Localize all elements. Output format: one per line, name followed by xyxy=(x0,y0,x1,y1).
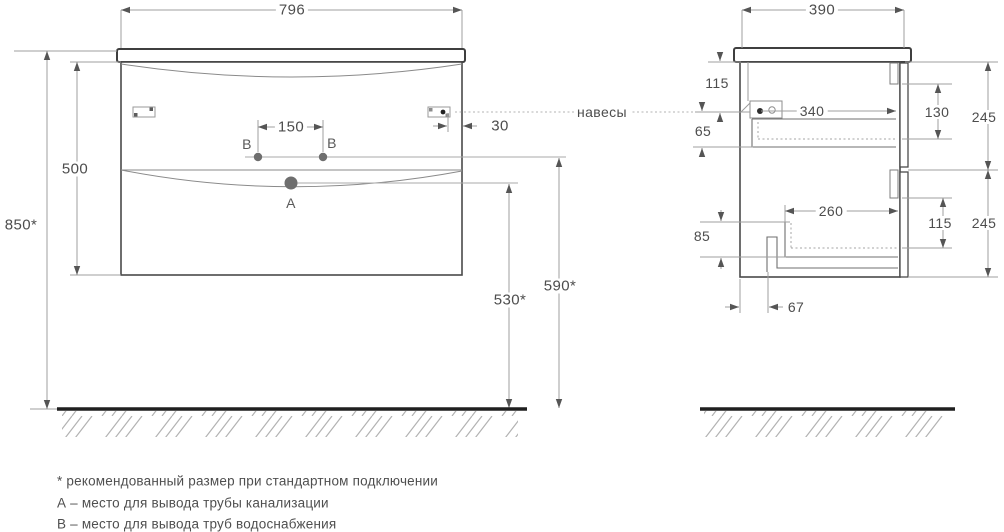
water-height-dim: 590* xyxy=(541,279,579,294)
drain-point-a xyxy=(285,177,298,190)
legend-note-point-b: В – место для вывода труб водоснабжения xyxy=(57,517,336,532)
side-top-recess-dim: 130 xyxy=(922,105,953,119)
side-hanger-top-dim: 115 xyxy=(702,76,732,90)
point-b-left-label: B xyxy=(241,137,253,151)
hanger-offset-dim: 30 xyxy=(488,119,512,134)
side-hanger-front-dim: 340 xyxy=(797,104,828,118)
front-right-hanger xyxy=(428,107,450,117)
front-height-dim: 500 xyxy=(59,162,91,177)
hangers-label: навесы xyxy=(574,105,630,119)
floor-side xyxy=(700,409,955,437)
floor-front xyxy=(57,409,527,437)
front-left-hanger xyxy=(133,107,155,117)
mount-height-dim: 850* xyxy=(2,218,40,233)
drain-height-dim: 530* xyxy=(491,293,529,308)
point-b-right-label: B xyxy=(326,136,338,150)
front-width-dim: 796 xyxy=(276,3,308,18)
side-basin-clearance-dim: 65 xyxy=(692,124,714,138)
front-view-drawing xyxy=(117,49,566,275)
point-a-label: A xyxy=(285,196,297,210)
technical-drawing: 796 500 850* 150 30 530* 590* B B A наве… xyxy=(0,0,1004,532)
side-drawer-inner-dim: 260 xyxy=(816,204,847,218)
water-point-b-right xyxy=(319,153,327,161)
holes-spacing-dim: 150 xyxy=(275,120,307,135)
drawing-canvas xyxy=(0,0,1004,532)
water-point-b-left xyxy=(254,153,262,161)
side-top-section-dim: 245 xyxy=(969,110,1000,124)
side-bottom-recess-dim: 115 xyxy=(925,216,955,230)
legend-note-recommended: * рекомендованный размер при стандартном… xyxy=(57,474,438,489)
side-depth-dim: 390 xyxy=(806,3,838,18)
side-view-drawing xyxy=(734,48,911,277)
side-bottom-section-dim: 245 xyxy=(969,216,1000,230)
side-drawer-clearance-dim: 85 xyxy=(691,229,713,243)
legend-note-point-a: А – место для вывода трубы канализации xyxy=(57,496,329,511)
side-back-offset-dim: 67 xyxy=(785,300,807,314)
